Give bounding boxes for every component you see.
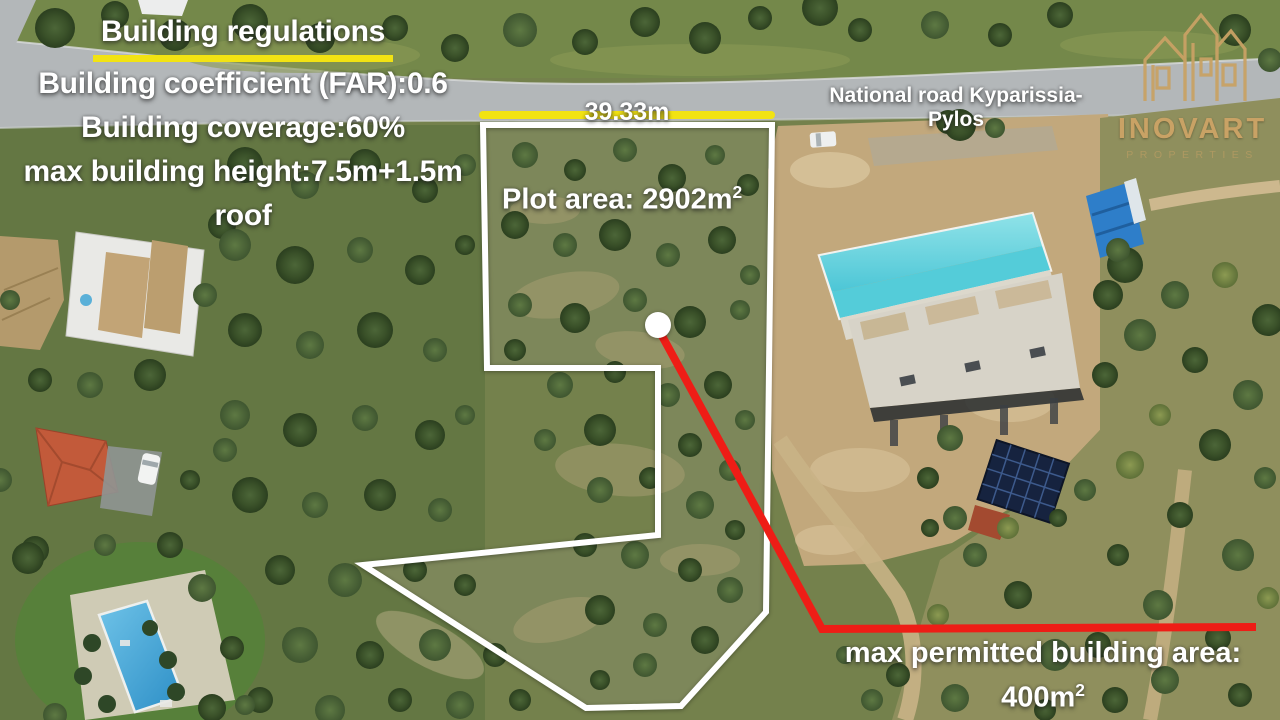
pointer-line bbox=[661, 334, 1256, 629]
plot-area-label: Plot area: 2902m2 bbox=[502, 182, 742, 217]
building-regulations-block: Building regulations Building coefficien… bbox=[0, 10, 486, 238]
regulation-height: max building height:7.5m+1.5m bbox=[0, 150, 486, 194]
max-area-value: 400m2 bbox=[810, 672, 1276, 717]
regulation-far: Building coefficient (FAR):0.6 bbox=[0, 62, 486, 106]
frontage-length-label: 39.33m bbox=[479, 98, 775, 127]
regulation-height-roof: roof bbox=[0, 194, 486, 238]
plot-marker-dot bbox=[645, 312, 671, 338]
regulation-coverage: Building coverage:60% bbox=[0, 106, 486, 150]
inovart-logo: INOVART PROPERTIES bbox=[1100, 4, 1280, 161]
national-road-label: National road Kyparissia-Pylos bbox=[806, 84, 1106, 132]
max-building-area-block: max permitted building area: 400m2 bbox=[810, 635, 1276, 717]
inovart-houses-icon bbox=[1133, 4, 1253, 106]
logo-subtitle: PROPERTIES bbox=[1100, 149, 1280, 161]
max-area-title: max permitted building area: bbox=[810, 635, 1276, 672]
regulations-title: Building regulations bbox=[0, 10, 486, 62]
annotated-aerial-photo: 39.33m Building regulations Building coe… bbox=[0, 0, 1280, 720]
logo-name: INOVART bbox=[1100, 113, 1280, 146]
